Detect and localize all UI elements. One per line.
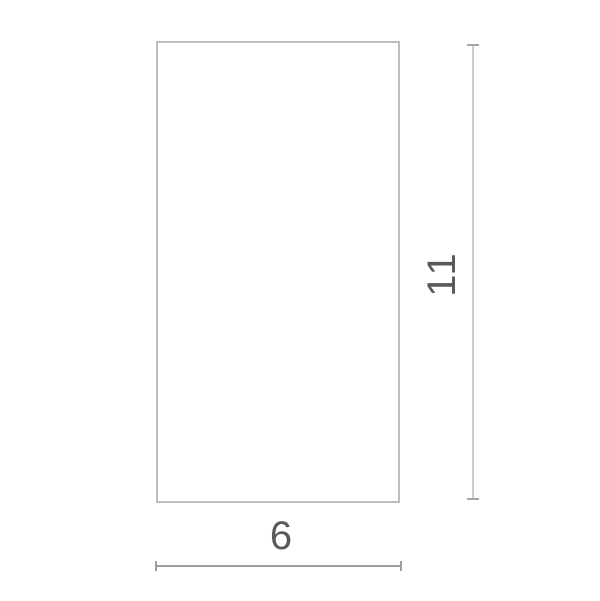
- height-dimension-label: 11: [422, 251, 462, 297]
- height-dimension-tick-bottom: [467, 498, 479, 500]
- width-dimension-tick-left: [155, 561, 157, 571]
- rectangle-shape: [156, 41, 400, 503]
- diagram-canvas: 11 6: [0, 0, 600, 601]
- width-dimension-label: 6: [270, 516, 292, 556]
- width-dimension-tick-right: [400, 561, 402, 571]
- height-dimension-line: [472, 45, 474, 499]
- width-dimension-line: [155, 565, 402, 567]
- height-dimension-tick-top: [467, 44, 479, 46]
